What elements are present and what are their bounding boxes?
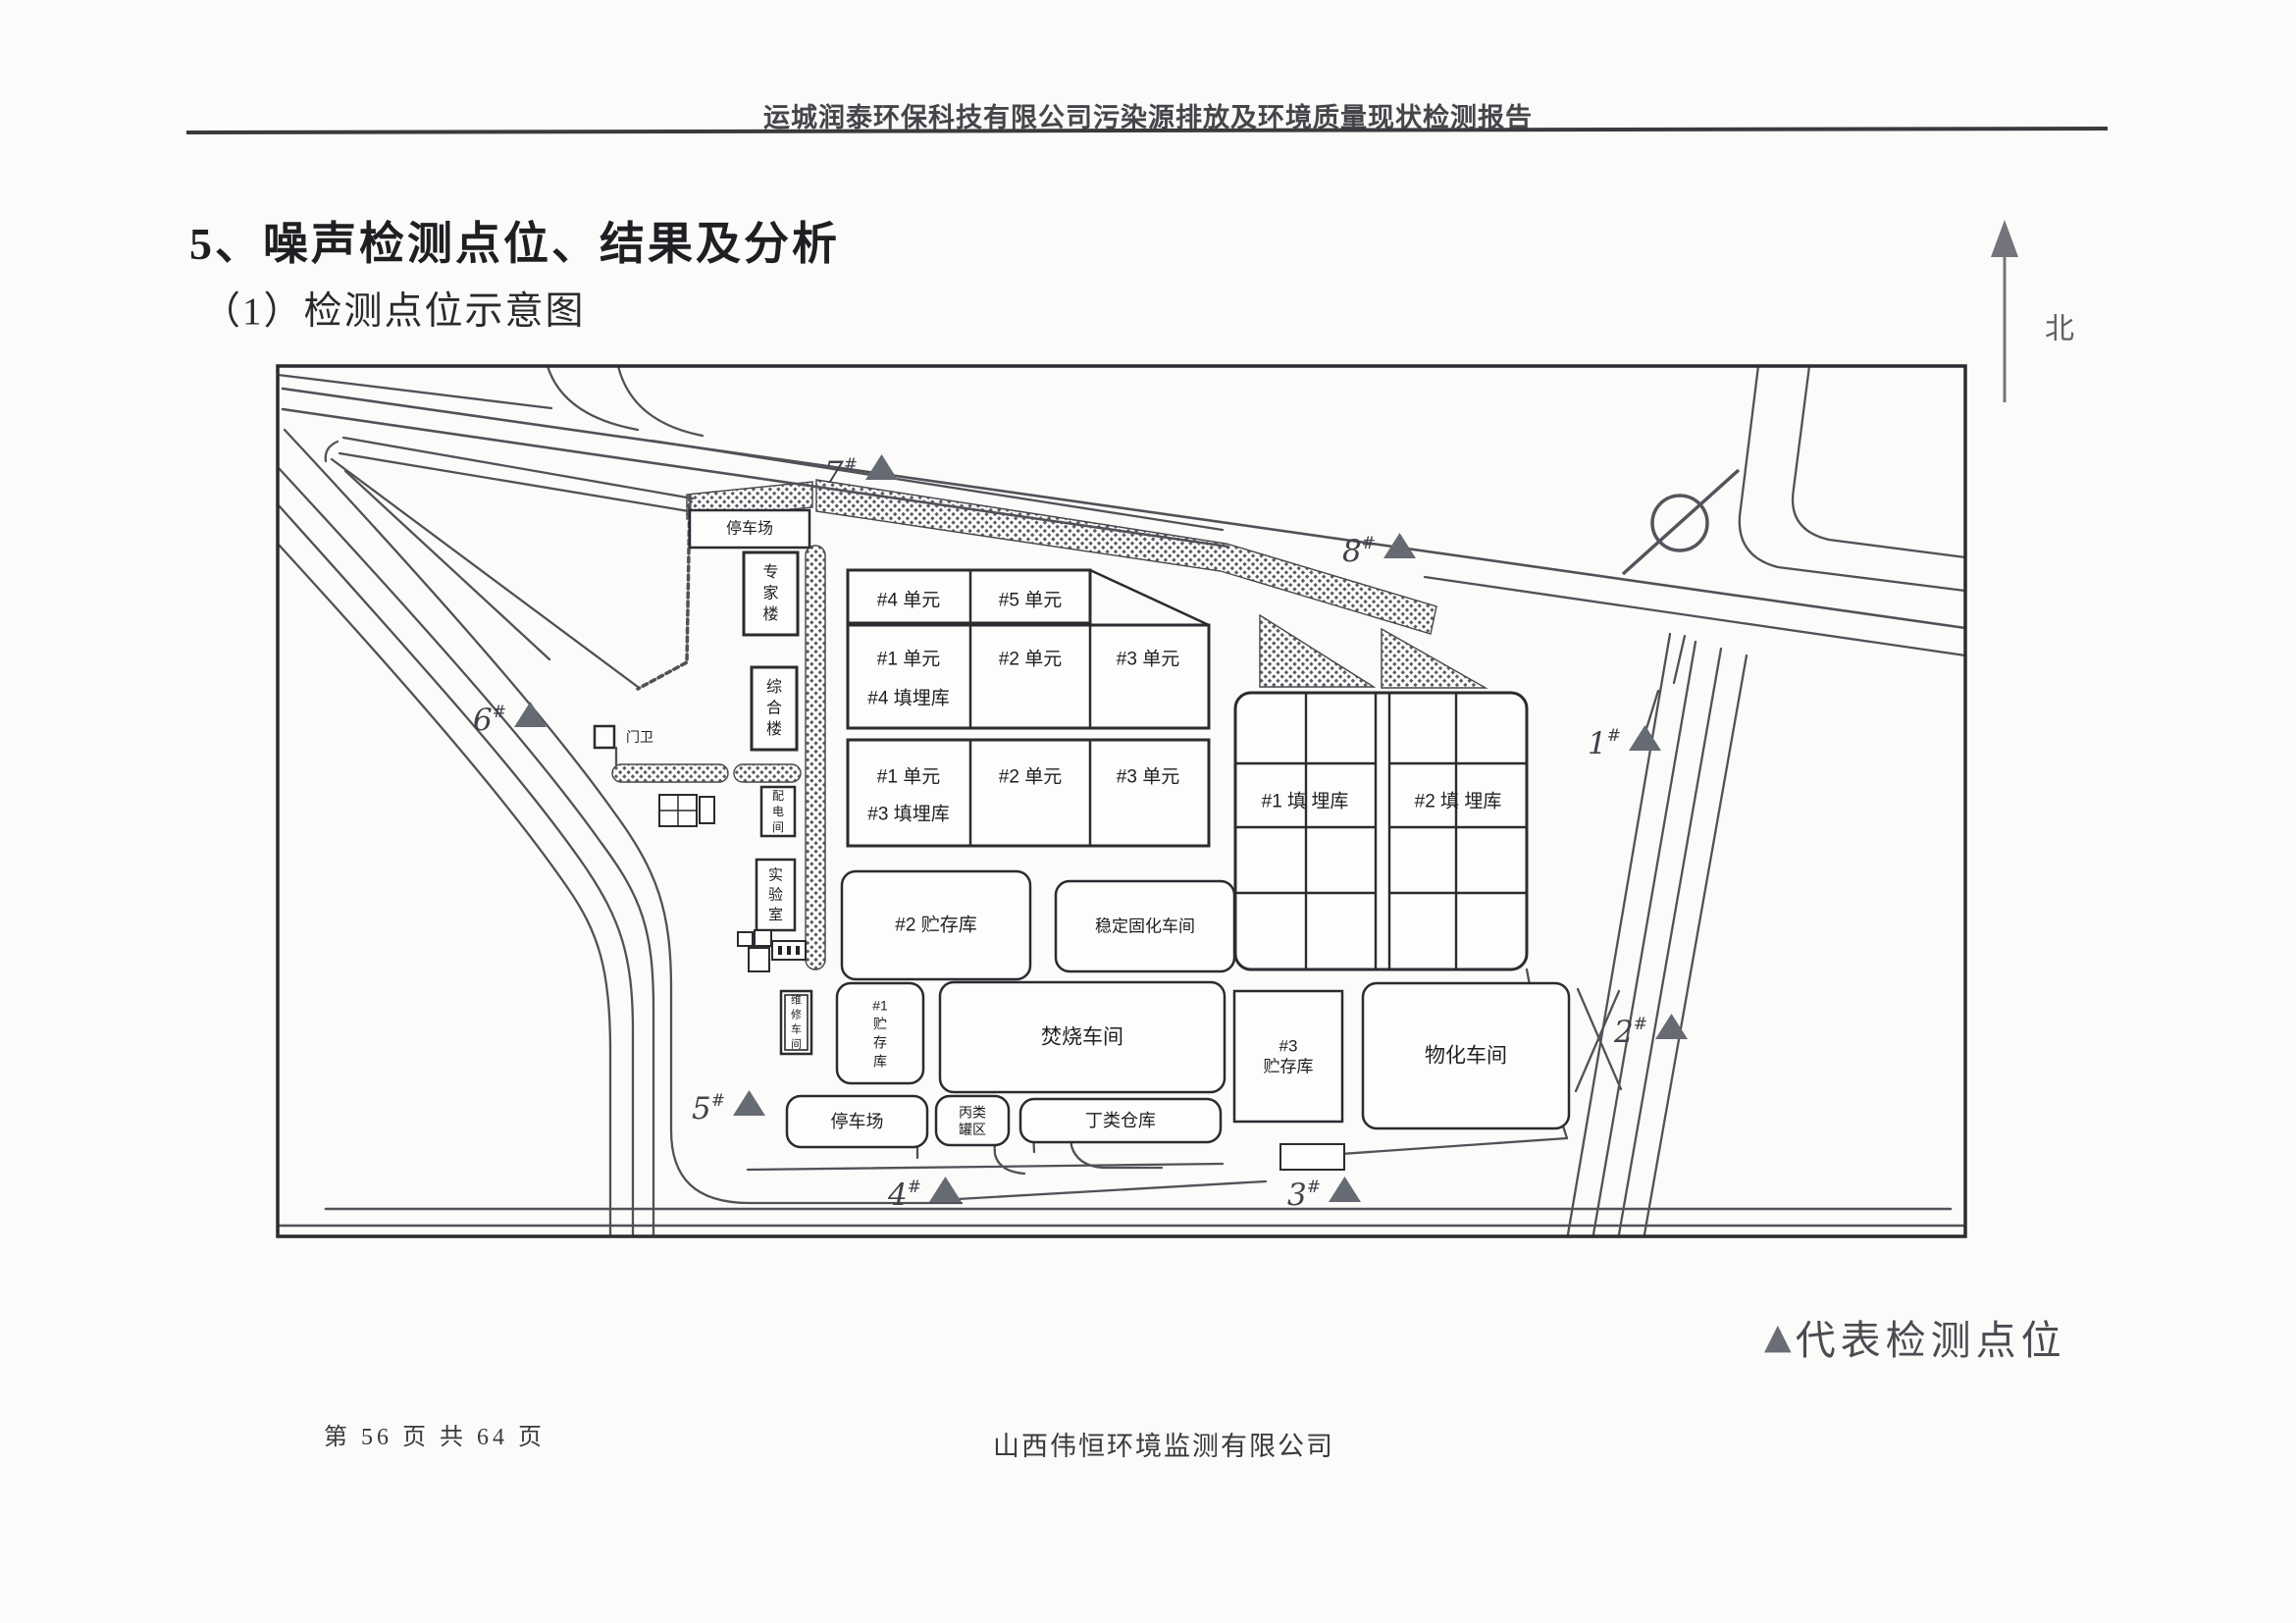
monitoring-point-5: 5# [692, 1090, 765, 1126]
structure-outline [1280, 1144, 1344, 1170]
monitoring-point-triangle [733, 1090, 765, 1116]
building-label: 存 [873, 1034, 887, 1050]
structure-bar [778, 946, 782, 955]
building-expert-building: 专家楼 [744, 552, 798, 635]
building-label: 维 [791, 994, 802, 1007]
unit-grid-label: #4 单元 [877, 590, 940, 611]
unit-grid-label: #5 单元 [999, 590, 1062, 611]
hatch-strip [734, 764, 801, 782]
monitoring-point-2: 2# [1613, 1014, 1688, 1050]
building-outline [1234, 991, 1342, 1122]
hatch-strip [806, 546, 825, 969]
building-label: 门卫 [626, 729, 653, 745]
building-maintenance-shop: 维修车间 [781, 991, 811, 1054]
building-label: 家 [762, 585, 778, 602]
monitoring-point-label: 6# [473, 703, 506, 738]
building-label: 丁类仓库 [1085, 1111, 1156, 1130]
monitoring-point-label: 4# [887, 1178, 921, 1213]
building-label: 楼 [766, 720, 782, 738]
unit-grid-box [848, 625, 1209, 728]
misc-symbols [1623, 220, 2018, 574]
monitoring-point-label: 3# [1287, 1178, 1321, 1213]
building-label: 综 [766, 678, 782, 696]
building-label: 库 [873, 1053, 887, 1069]
structure-outline [749, 948, 769, 971]
monitoring-point-4: 4# [887, 1177, 962, 1213]
road-line [283, 389, 1965, 628]
building-label: 电 [772, 805, 784, 818]
monitoring-point-3: 3# [1287, 1177, 1361, 1213]
building-label: 罐区 [959, 1122, 986, 1137]
road-line [548, 366, 638, 430]
building-label: 修 [791, 1008, 802, 1021]
road-line [1576, 991, 1619, 1091]
structure-outline [755, 930, 771, 946]
unit-grid-box [848, 740, 1209, 846]
road-line [1793, 366, 1965, 557]
page-number: 第 56 页 共 64 页 [324, 1417, 546, 1451]
building-power-distribution: 配电间 [761, 787, 795, 836]
monitoring-point-triangle [865, 454, 898, 480]
building-label: 楼 [762, 605, 778, 623]
building-storage-2: #2 贮存库 [842, 871, 1030, 979]
section-heading: 5、噪声检测点位、结果及分析 [189, 208, 840, 273]
building-label: 间 [772, 820, 784, 834]
legend-triangle-marker: ▲ [1764, 1317, 1792, 1357]
building-label: 专 [762, 563, 778, 581]
road-line [343, 438, 693, 498]
road-line [278, 504, 633, 1234]
road-line [1568, 634, 1670, 1234]
monitoring-point-6: 6# [473, 702, 547, 738]
structure-outline [738, 932, 753, 946]
monitoring-point-label: 2# [1613, 1015, 1647, 1050]
building-label: 丙类 [959, 1104, 986, 1120]
building-outline [595, 726, 614, 748]
building-label: #3 [1279, 1036, 1298, 1055]
structure-bar [787, 946, 791, 955]
landfill-grid-outline [1235, 693, 1527, 969]
building-label: 贮存库 [1264, 1058, 1314, 1076]
building-label: #1 [872, 998, 888, 1014]
building-label: 间 [791, 1037, 802, 1050]
monitoring-point-triangle [1329, 1177, 1361, 1202]
building-gatehouse: 门卫 [595, 726, 653, 748]
road-line [1644, 655, 1747, 1234]
landfill-grid-label: #2 填 埋库 [1415, 791, 1502, 812]
road-line [339, 453, 689, 511]
unit-grid-label: #3 单元 [1117, 766, 1179, 788]
building-parking-north: 停车场 [690, 510, 809, 548]
building-incineration-shop: 焚烧车间 [940, 982, 1225, 1092]
road-junction-slash-icon [1623, 470, 1739, 574]
unit-grid-label: #3 填埋库 [867, 804, 949, 825]
building-label: 合 [766, 700, 782, 717]
monitoring-point-triangle [929, 1177, 962, 1202]
road-line [278, 375, 551, 408]
unit-grid-label: #4 填埋库 [867, 688, 949, 709]
section-subheading: （1）检测点位示意图 [202, 281, 586, 336]
road-line [958, 1181, 1266, 1199]
building-label: 稳定固化车间 [1095, 917, 1195, 936]
monitoring-point-triangle [514, 702, 547, 727]
building-physicochemical-shop: 物化车间 [1363, 983, 1569, 1128]
building-storage-3: #3贮存库 [1234, 991, 1342, 1122]
footer-company: 山西伟恒环境监测有限公司 [993, 1425, 1334, 1463]
monitoring-point-label: 5# [692, 1091, 725, 1126]
building-label: 室 [768, 907, 783, 923]
landfill-grid-label: #1 填 埋库 [1262, 791, 1349, 812]
hatch-strip [1260, 615, 1374, 687]
unit-grid-label: #2 单元 [999, 649, 1062, 670]
building-label: 停车场 [726, 520, 773, 538]
unit-grid-roof-edge [1090, 570, 1209, 625]
road-line [1313, 1138, 1567, 1156]
legend: ▲代表检测点位 [1764, 1307, 2066, 1366]
unit-grid-label: #1 单元 [877, 649, 940, 670]
hatch-strip [612, 764, 728, 782]
structure-bar [796, 946, 800, 955]
building-label: #2 贮存库 [895, 915, 976, 936]
road-line [345, 471, 549, 659]
monitoring-point-label: 8# [1342, 534, 1376, 569]
road-line [1740, 366, 1965, 591]
unit-grid-label: #3 单元 [1117, 649, 1179, 670]
building-class-c-tank-area: 丙类罐区 [936, 1096, 1009, 1145]
building-label: 停车场 [831, 1112, 884, 1131]
building-class-d-warehouse: 丁类仓库 [1020, 1099, 1221, 1142]
legend-text: 代表检测点位 [1796, 1318, 2066, 1363]
unit-grid-label: #1 单元 [877, 766, 940, 788]
building-label: 物化车间 [1425, 1045, 1507, 1068]
building-label: 验 [768, 887, 783, 904]
unit-grid-label: #2 单元 [999, 766, 1062, 788]
building-office-building: 综合楼 [752, 667, 797, 750]
building-storage-1: #1贮存库 [837, 983, 923, 1083]
road-line [1619, 649, 1721, 1234]
north-arrow-icon [1991, 220, 2018, 257]
building-laboratory: 实验室 [757, 860, 795, 930]
report-page: #4 单元#5 单元#1 单元#4 填埋库#2 单元#3 单元#1 单元#3 填… [0, 0, 2296, 1623]
road-line [618, 366, 703, 436]
hatch-strip [1382, 629, 1486, 688]
road-line [1674, 636, 1685, 683]
building-label: 实 [768, 866, 783, 883]
road-line [278, 544, 610, 1234]
road-line [638, 496, 690, 689]
building-parking-south: 停车场 [787, 1096, 927, 1147]
monitoring-point-triangle [1629, 725, 1661, 751]
monitoring-point-8: 8# [1342, 533, 1416, 569]
monitoring-point-label: 1# [1588, 726, 1621, 761]
building-stabilization-shop: 稳定固化车间 [1056, 881, 1234, 971]
north-label: 北 [2045, 304, 2074, 347]
building-label: 配 [772, 789, 784, 803]
structure-outline [700, 797, 714, 823]
building-label: 贮 [873, 1017, 887, 1032]
building-label: 车 [791, 1021, 802, 1035]
building-label: 焚烧车间 [1041, 1026, 1123, 1049]
